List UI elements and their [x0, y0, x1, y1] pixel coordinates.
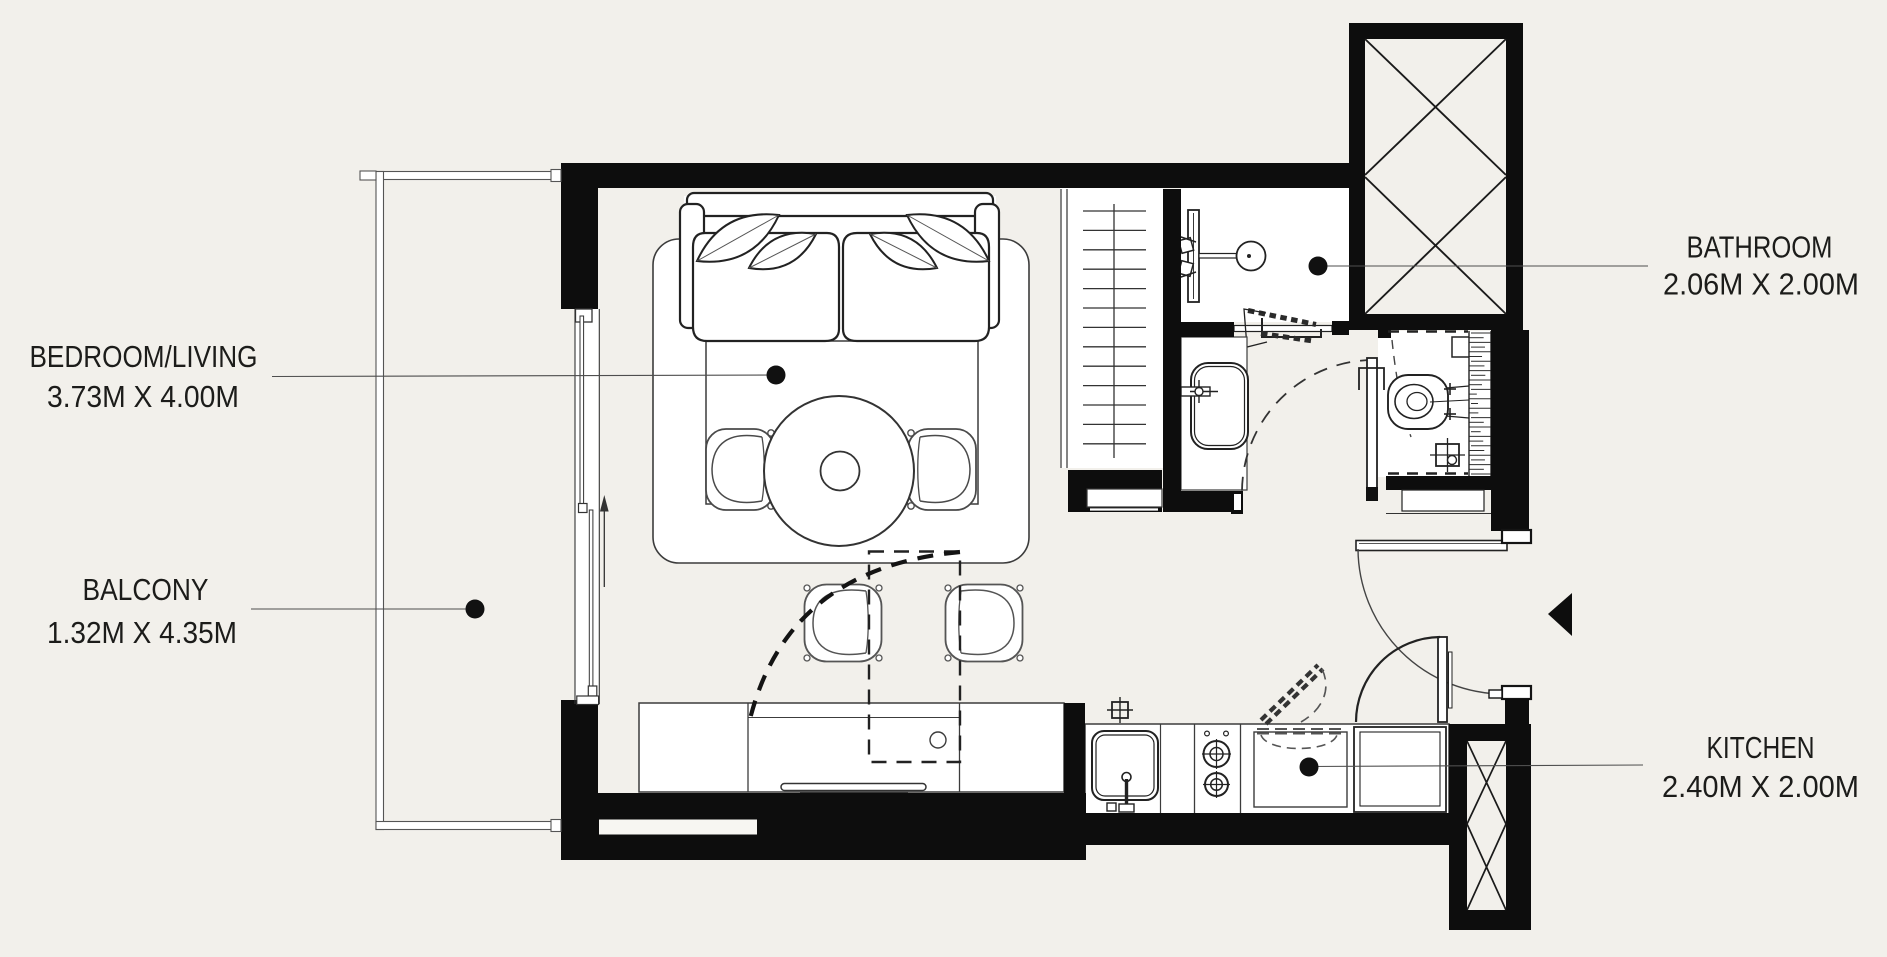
svg-text:KITCHEN: KITCHEN: [1707, 731, 1815, 765]
svg-text:2.06M X 2.00M: 2.06M X 2.00M: [1663, 268, 1859, 302]
svg-text:BALCONY: BALCONY: [83, 573, 209, 607]
svg-text:2.40M X 2.00M: 2.40M X 2.00M: [1662, 770, 1859, 804]
svg-text:BEDROOM/LIVING: BEDROOM/LIVING: [30, 340, 258, 374]
svg-text:3.73M X 4.00M: 3.73M X 4.00M: [47, 380, 239, 414]
svg-text:BATHROOM: BATHROOM: [1687, 231, 1833, 265]
svg-text:1.32M X 4.35M: 1.32M X 4.35M: [47, 616, 237, 650]
